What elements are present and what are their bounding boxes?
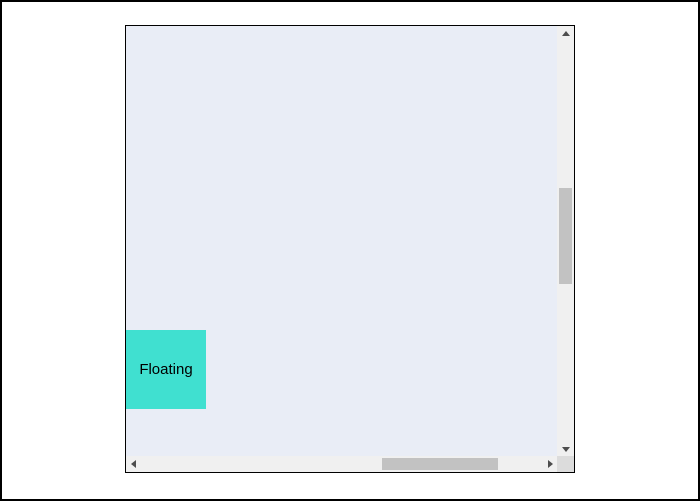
scrollbar-corner xyxy=(557,456,574,472)
horizontal-scrollbar-thumb[interactable] xyxy=(382,458,498,470)
scroll-right-button[interactable] xyxy=(543,456,557,472)
window: Floating xyxy=(0,0,700,501)
arrow-right-icon xyxy=(548,460,553,468)
floating-widget[interactable]: Floating xyxy=(126,330,206,409)
vertical-scrollbar-thumb[interactable] xyxy=(559,188,572,284)
scroll-area: Floating xyxy=(125,25,575,473)
scroll-left-button[interactable] xyxy=(126,456,140,472)
vertical-scrollbar[interactable] xyxy=(557,26,574,456)
arrow-down-icon xyxy=(562,447,570,452)
arrow-left-icon xyxy=(131,460,136,468)
scroll-up-button[interactable] xyxy=(557,26,574,40)
floating-widget-label: Floating xyxy=(139,361,192,378)
arrow-up-icon xyxy=(562,31,570,36)
horizontal-scrollbar[interactable] xyxy=(126,456,557,472)
scroll-down-button[interactable] xyxy=(557,442,574,456)
